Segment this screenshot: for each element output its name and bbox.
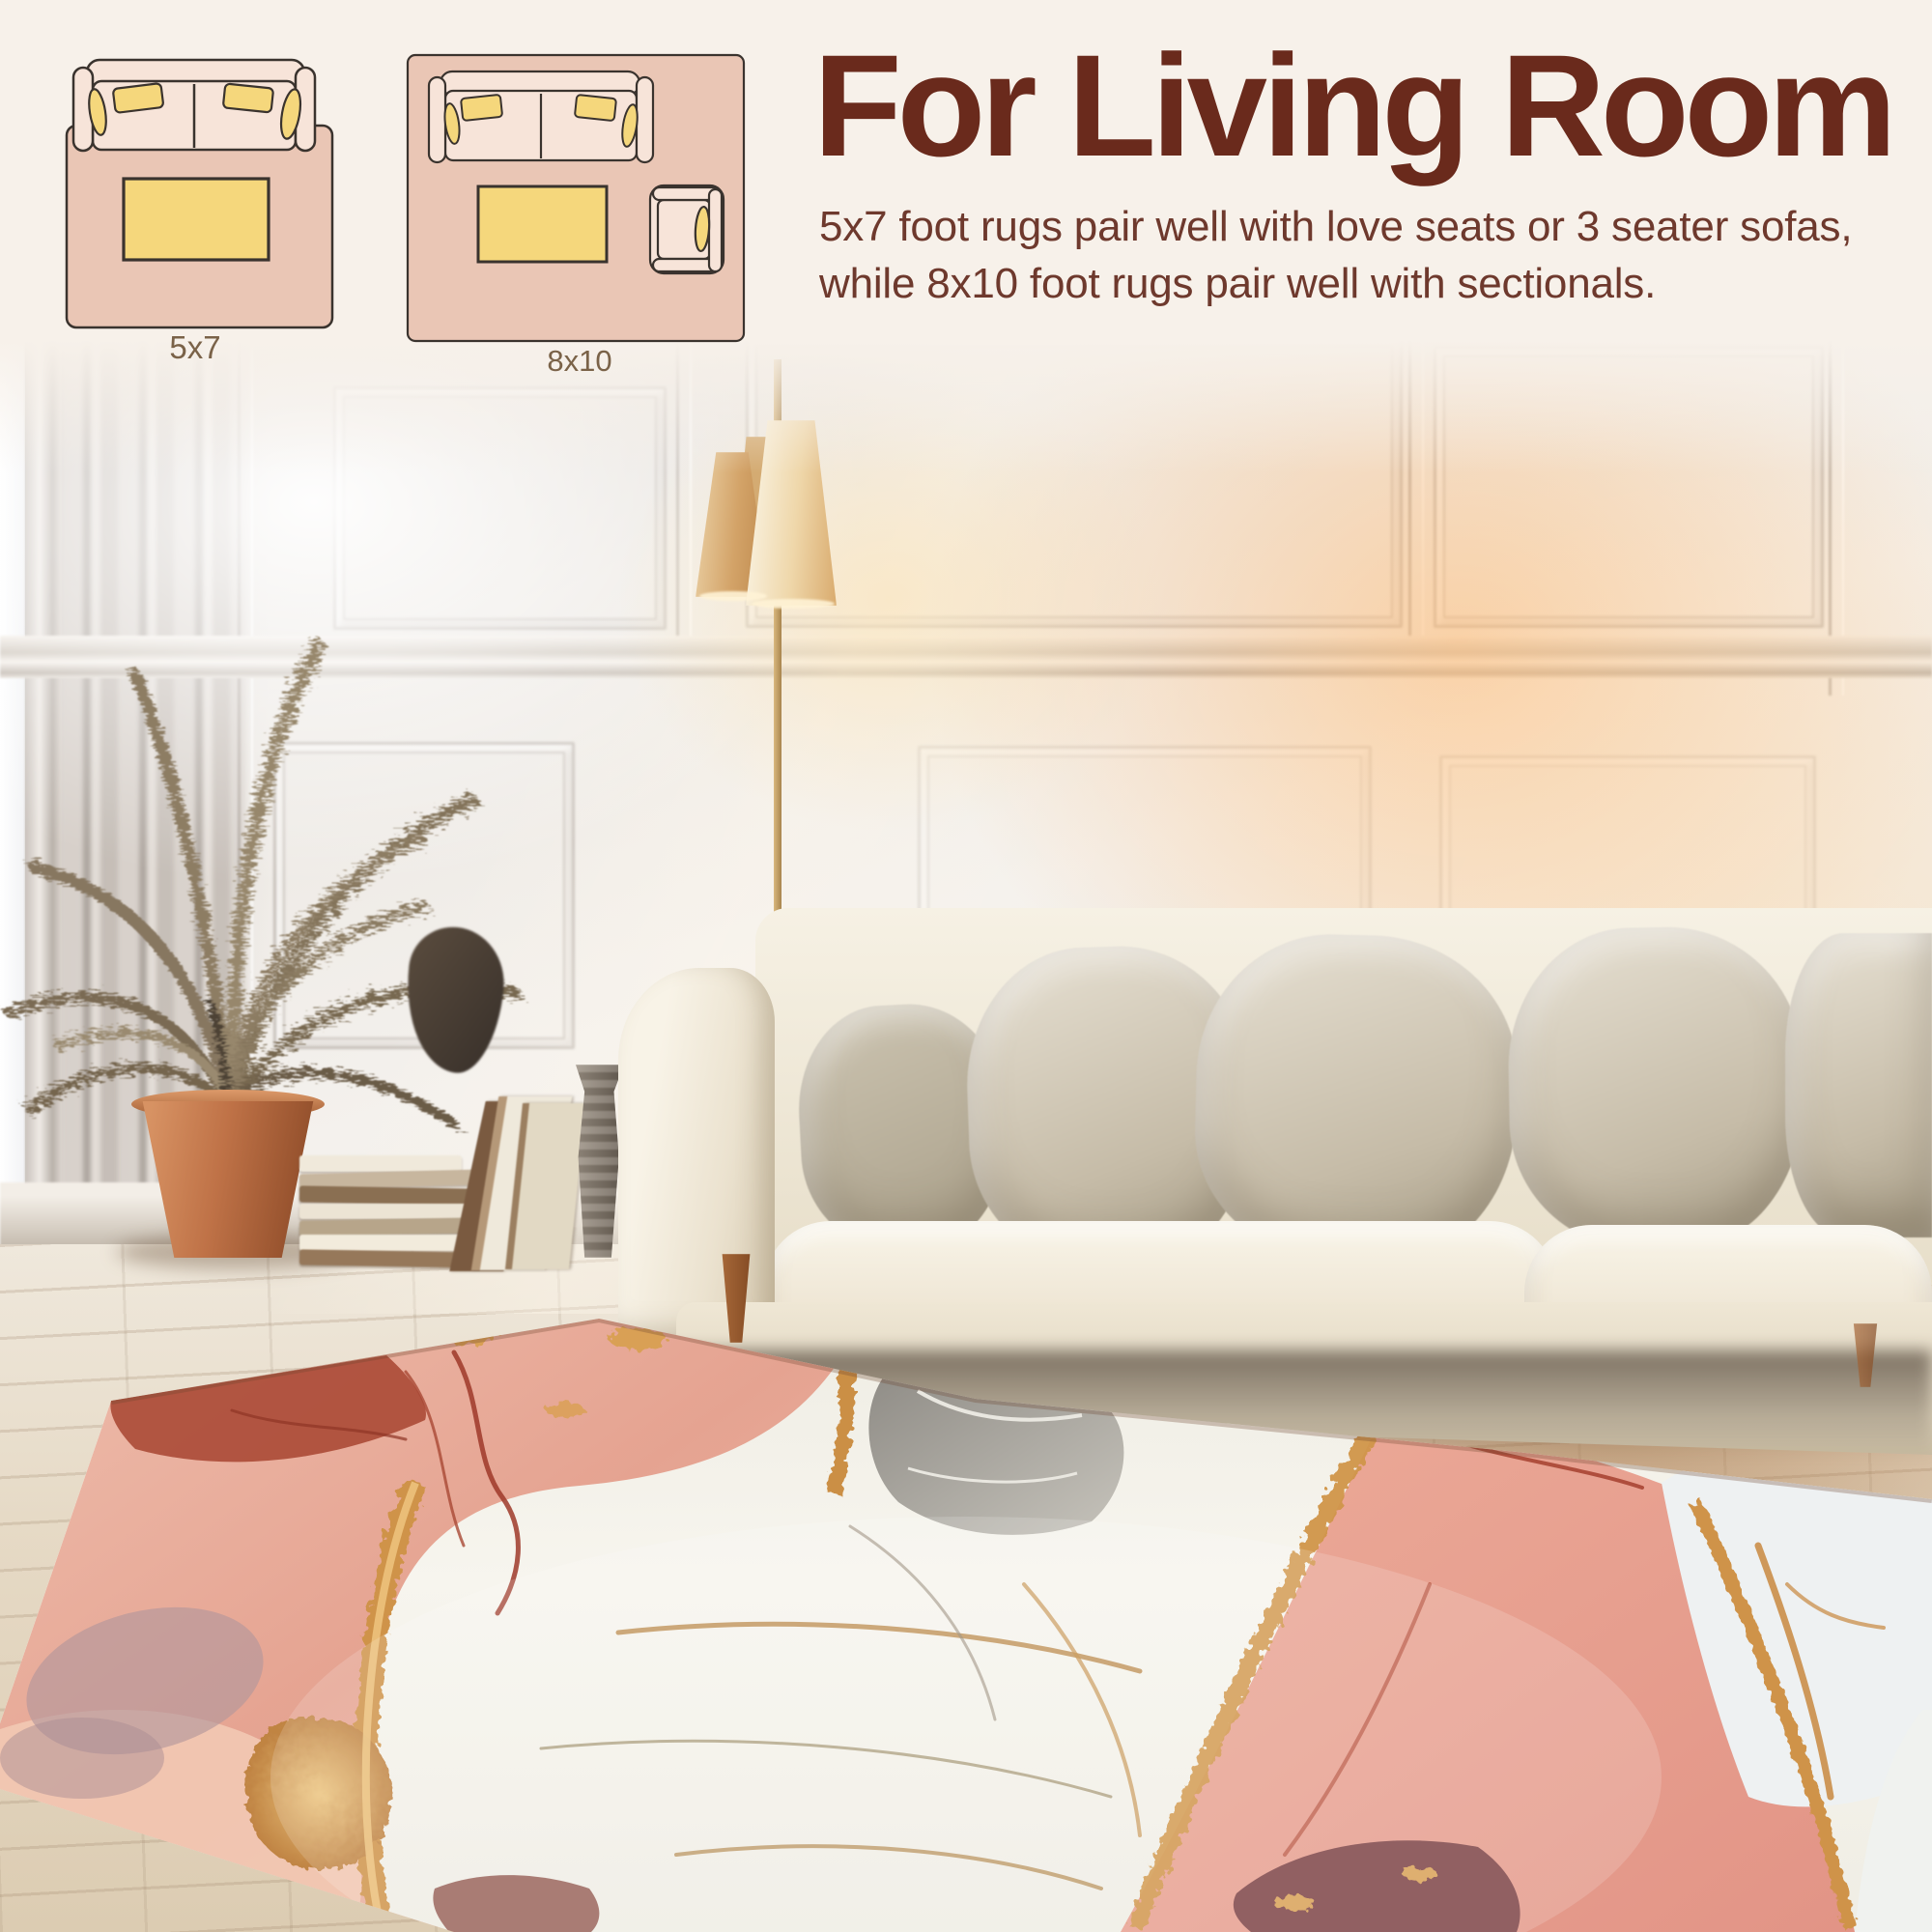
diagram-label-5x7: 5x7 [169,329,220,365]
coffee-table-top-view [124,179,269,260]
armchair-top-view [650,185,724,273]
coffee-table-top-view [478,186,607,262]
size-diagram-5x7 [67,60,332,327]
sofa-top-view [73,60,315,151]
page-title: For Living Room [813,27,1924,184]
living-room-photo [0,328,1932,1932]
page-description: 5x7 foot rugs pair well with love seats … [819,199,1889,313]
marble-area-rug [0,328,1932,1932]
diagram-label-8x10: 8x10 [547,344,611,378]
rug-size-diagrams: 5x7 [0,0,773,417]
product-infographic: 5x7 [0,0,1932,1932]
header-band: 5x7 [0,0,1932,425]
size-diagram-8x10 [408,55,744,341]
